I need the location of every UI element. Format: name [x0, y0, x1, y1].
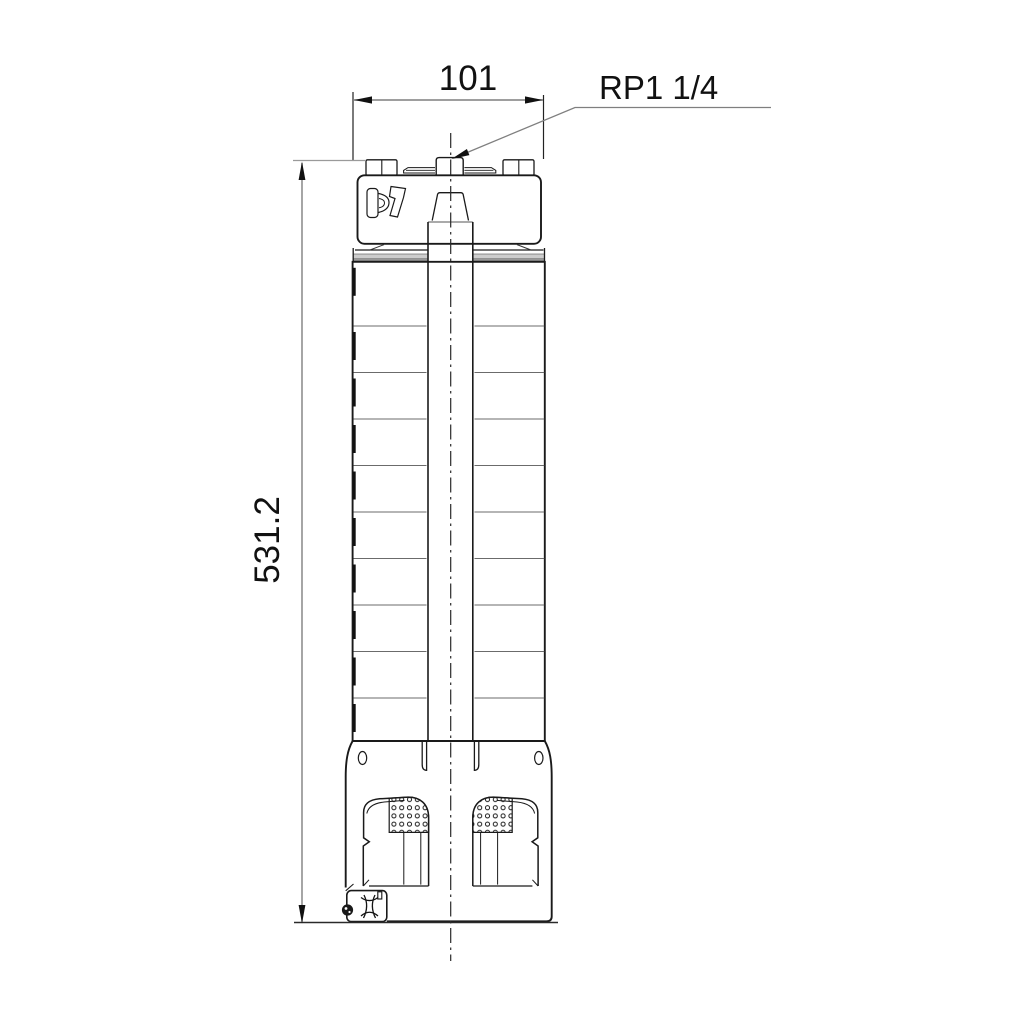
oval-hole-right: [535, 752, 543, 765]
body-outline: [353, 262, 545, 741]
arrowhead-right: [525, 96, 543, 103]
connection-label: RP1 1/4: [599, 69, 718, 106]
arrowhead-left: [354, 96, 372, 103]
suction-housing: [342, 741, 552, 922]
bolt-left: [366, 160, 397, 176]
housing-left-edge: [346, 741, 353, 888]
housing-right-edge: [545, 741, 552, 921]
width-dimension-label: 101: [439, 59, 497, 98]
pump-body: [353, 222, 545, 741]
cable-guard-hook-left: [422, 741, 426, 770]
cable-guard-hook-right: [474, 741, 478, 770]
bolt-right: [503, 160, 534, 176]
drawing-canvas: 101 531.2 RP1 1/4: [0, 0, 1024, 1024]
arrowhead-down: [299, 905, 306, 924]
inlet-window-right: [473, 797, 538, 886]
connection-leader: RP1 1/4: [452, 69, 772, 159]
arrowhead-up: [299, 162, 306, 181]
pump-dimensional-drawing: 101 531.2 RP1 1/4: [0, 0, 1024, 1024]
perforated-screen-left: [389, 797, 428, 832]
cap-body-band: [353, 245, 544, 262]
height-dimension-label: 531.2: [248, 496, 287, 584]
brand-plate: [342, 891, 387, 922]
brand-seal: [342, 904, 353, 915]
oval-hole-left: [358, 752, 366, 765]
port-ridge-right: [464, 168, 495, 173]
band-notch-left: [370, 245, 384, 250]
width-dimension: 101: [353, 59, 544, 161]
perforated-screen-right: [473, 797, 512, 832]
band-notch-right: [517, 245, 531, 250]
port-ridge-left: [404, 168, 435, 173]
pump-top-cap: [358, 158, 542, 244]
inlet-window-left: [363, 797, 428, 886]
discharge-port: [436, 158, 463, 176]
